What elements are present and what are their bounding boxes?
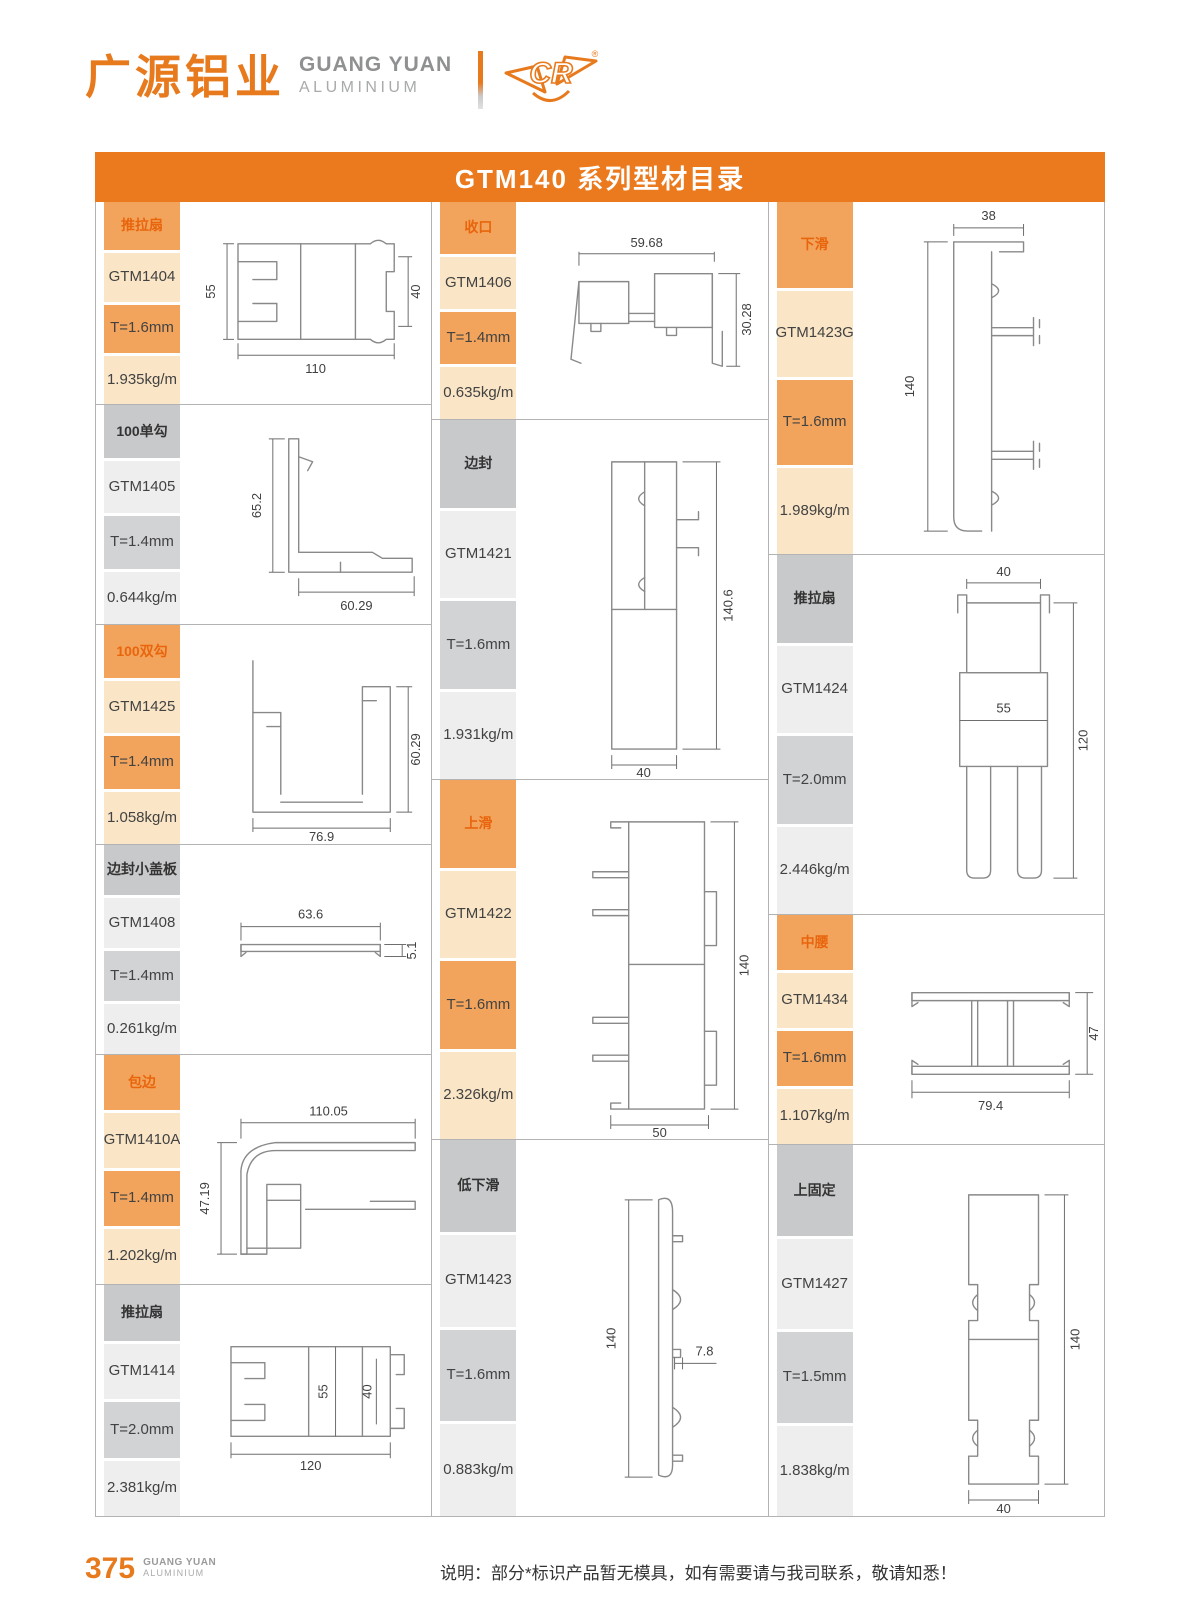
- page-title: GTM140 系列型材目录: [95, 152, 1105, 202]
- entry-labels: 下滑 GTM1423G T=1.6mm 1.989kg/m: [777, 202, 853, 554]
- product-code: GTM1434: [777, 973, 853, 1028]
- dim-label: 60.29: [408, 733, 423, 765]
- column-1: 推拉扇 GTM1404 T=1.6mm 1.935kg/m: [95, 202, 432, 1517]
- category-label: 推拉扇: [104, 202, 180, 250]
- entry-labels: 推拉扇 GTM1414 T=2.0mm 2.381kg/m: [104, 1285, 180, 1516]
- entry-labels: 包边 GTM1410A T=1.4mm 1.202kg/m: [104, 1055, 180, 1284]
- dim-label: 55: [996, 701, 1010, 716]
- entry-gtm1424: 推拉扇 GTM1424 T=2.0mm 2.446kg/m: [769, 555, 1104, 915]
- thickness-label: T=1.6mm: [440, 601, 516, 689]
- dim-label: 5.1: [404, 942, 419, 960]
- dim-label: 55: [316, 1384, 331, 1398]
- weight-label: 1.989kg/m: [777, 468, 853, 554]
- profile-svg: 55 110 40: [180, 202, 431, 404]
- profile-drawing: 38 140: [853, 202, 1104, 554]
- catalog-columns: 推拉扇 GTM1404 T=1.6mm 1.935kg/m: [95, 202, 1105, 1517]
- profile-svg: 110.05 47.19: [180, 1055, 431, 1284]
- thickness-label: T=1.6mm: [777, 1031, 853, 1086]
- brand-header: 广源铝业 GUANG YUAN ALUMINIUM CR ®: [85, 45, 1200, 120]
- dim-label: 140: [737, 955, 752, 977]
- entry-gtm1404: 推拉扇 GTM1404 T=1.6mm 1.935kg/m: [96, 202, 431, 405]
- category-label: 边封小盖板: [104, 845, 180, 895]
- entry-gtm1425: 100双勾 GTM1425 T=1.4mm 1.058kg/m: [96, 625, 431, 845]
- thickness-label: T=1.6mm: [777, 380, 853, 466]
- dim-label: 60.29: [340, 598, 372, 613]
- thickness-label: T=1.4mm: [104, 951, 180, 1001]
- profile-svg: 65.2 60.29: [180, 405, 431, 624]
- weight-label: 0.261kg/m: [104, 1004, 180, 1054]
- profile-drawing: 63.6 5.1: [180, 845, 431, 1054]
- dim-label: 110: [305, 361, 326, 376]
- category-label: 下滑: [777, 202, 853, 288]
- profile-drawing: 140 40: [853, 1145, 1104, 1516]
- product-code: GTM1427: [777, 1239, 853, 1330]
- product-code: GTM1404: [104, 253, 180, 301]
- catalog-page: 广源铝业 GUANG YUAN ALUMINIUM CR ® GTM140 系列…: [0, 0, 1200, 1617]
- category-label: 100双勾: [104, 625, 180, 678]
- entry-labels: 边封 GTM1421 T=1.6mm 1.931kg/m: [440, 420, 516, 779]
- entry-gtm1414: 推拉扇 GTM1414 T=2.0mm 2.381kg/m: [96, 1285, 431, 1517]
- profile-svg: 40 55 120: [853, 555, 1104, 914]
- entry-gtm1427: 上固定 GTM1427 T=1.5mm 1.838kg/m: [769, 1145, 1104, 1517]
- weight-label: 1.202kg/m: [104, 1229, 180, 1284]
- dim-label: 76.9: [309, 829, 334, 844]
- thickness-label: T=1.6mm: [440, 961, 516, 1049]
- logo-english-line1: GUANG YUAN: [299, 53, 452, 77]
- product-code: GTM1408: [104, 898, 180, 948]
- profile-drawing: 65.2 60.29: [180, 405, 431, 624]
- entry-labels: 低下滑 GTM1423 T=1.6mm 0.883kg/m: [440, 1140, 516, 1516]
- thickness-label: T=1.4mm: [104, 516, 180, 569]
- dim-label: 7.8: [696, 1343, 714, 1358]
- entry-labels: 100双勾 GTM1425 T=1.4mm 1.058kg/m: [104, 625, 180, 844]
- cr-logo-icon: CR ®: [501, 47, 601, 113]
- dim-label: 140: [902, 376, 917, 398]
- dim-label: 140: [1067, 1329, 1082, 1351]
- weight-label: 0.635kg/m: [440, 367, 516, 419]
- dim-label: 30.28: [739, 303, 754, 335]
- weight-label: 1.931kg/m: [440, 692, 516, 780]
- entry-gtm1410a: 包边 GTM1410A T=1.4mm 1.202kg/m: [96, 1055, 431, 1285]
- profile-drawing: 40 55 120: [853, 555, 1104, 914]
- dim-label: 79.4: [978, 1098, 1003, 1113]
- weight-label: 0.644kg/m: [104, 572, 180, 625]
- entry-gtm1406: 收口 GTM1406 T=1.4mm 0.635kg/m: [432, 202, 767, 420]
- dim-label: 40: [637, 765, 651, 779]
- dim-label: 65.2: [249, 493, 264, 518]
- dim-label: 120: [300, 1458, 322, 1473]
- profile-drawing: 79.4 47: [853, 915, 1104, 1144]
- product-code: GTM1423: [440, 1235, 516, 1327]
- weight-label: 1.107kg/m: [777, 1089, 853, 1144]
- footer-brand-line1: GUANG YUAN: [143, 1557, 216, 1568]
- category-label: 收口: [440, 202, 516, 254]
- page-number: 375: [85, 1553, 135, 1585]
- product-code: GTM1421: [440, 511, 516, 599]
- dim-label: 140: [604, 1328, 619, 1350]
- profile-svg: 63.6 5.1: [180, 845, 431, 1054]
- thickness-label: T=1.4mm: [104, 1171, 180, 1226]
- footer-brand-line2: ALUMINIUM: [143, 1568, 216, 1578]
- profile-svg: 140 50: [516, 780, 767, 1139]
- profile-svg: 55 40 120: [180, 1285, 431, 1516]
- profile-svg: 140 7.8: [516, 1140, 767, 1516]
- dim-label: 59.68: [631, 235, 663, 250]
- entry-labels: 推拉扇 GTM1424 T=2.0mm 2.446kg/m: [777, 555, 853, 914]
- entry-gtm1434: 中腰 GTM1434 T=1.6mm 1.107kg/m: [769, 915, 1104, 1145]
- entry-gtm1423g: 下滑 GTM1423G T=1.6mm 1.989kg/m: [769, 202, 1104, 555]
- entry-labels: 边封小盖板 GTM1408 T=1.4mm 0.261kg/m: [104, 845, 180, 1054]
- profile-svg: 140 40: [853, 1145, 1104, 1516]
- logo-english: GUANG YUAN ALUMINIUM: [299, 53, 452, 97]
- profile-svg: 59.68 30.28: [516, 202, 767, 419]
- column-2: 收口 GTM1406 T=1.4mm 0.635kg/m: [432, 202, 768, 1517]
- product-code: GTM1423G: [777, 291, 853, 377]
- entry-labels: 中腰 GTM1434 T=1.6mm 1.107kg/m: [777, 915, 853, 1144]
- dim-label: 47.19: [197, 1182, 212, 1214]
- category-label: 推拉扇: [104, 1285, 180, 1341]
- product-code: GTM1422: [440, 871, 516, 959]
- dim-label: 40: [408, 284, 423, 298]
- thickness-label: T=1.4mm: [104, 736, 180, 789]
- page-number-block: 375 GUANG YUAN ALUMINIUM: [85, 1553, 216, 1585]
- entry-labels: 上滑 GTM1422 T=1.6mm 2.326kg/m: [440, 780, 516, 1139]
- entry-gtm1405: 100单勾 GTM1405 T=1.4mm 0.644kg/m: [96, 405, 431, 625]
- catalog-table: GTM140 系列型材目录 推拉扇 GTM1404 T=1.6mm 1.935k…: [95, 152, 1105, 1517]
- category-label: 上滑: [440, 780, 516, 868]
- weight-label: 2.326kg/m: [440, 1052, 516, 1140]
- thickness-label: T=2.0mm: [104, 1402, 180, 1458]
- profile-drawing: 55 40 120: [180, 1285, 431, 1516]
- thickness-label: T=2.0mm: [777, 736, 853, 824]
- logo-chinese: 广源铝业: [85, 45, 285, 109]
- product-code: GTM1406: [440, 257, 516, 309]
- entry-gtm1421: 边封 GTM1421 T=1.6mm 1.931kg/m: [432, 420, 767, 780]
- entry-gtm1422: 上滑 GTM1422 T=1.6mm 2.326kg/m: [432, 780, 767, 1140]
- category-label: 100单勾: [104, 405, 180, 458]
- entry-labels: 推拉扇 GTM1404 T=1.6mm 1.935kg/m: [104, 202, 180, 404]
- product-code: GTM1405: [104, 461, 180, 514]
- profile-drawing: 140 50: [516, 780, 767, 1139]
- profile-svg: 38 140: [853, 202, 1104, 554]
- dim-label: 140.6: [721, 589, 736, 621]
- category-label: 包边: [104, 1055, 180, 1110]
- thickness-label: T=1.4mm: [440, 312, 516, 364]
- weight-label: 2.446kg/m: [777, 827, 853, 915]
- entry-gtm1423: 低下滑 GTM1423 T=1.6mm 0.883kg/m: [432, 1140, 767, 1517]
- footer-note: 说明：部分*标识产品暂无模具，如有需要请与我司联系，敬请知悉！: [440, 1559, 957, 1584]
- thickness-label: T=1.5mm: [777, 1332, 853, 1423]
- entry-labels: 上固定 GTM1427 T=1.5mm 1.838kg/m: [777, 1145, 853, 1516]
- dim-label: 50: [653, 1125, 667, 1139]
- profile-svg: 79.4 47: [853, 915, 1104, 1144]
- entry-gtm1408: 边封小盖板 GTM1408 T=1.4mm 0.261kg/m: [96, 845, 431, 1055]
- category-label: 边封: [440, 420, 516, 508]
- registered-mark: ®: [592, 49, 599, 59]
- dim-label: 110.05: [309, 1104, 348, 1119]
- dim-label: 40: [996, 1501, 1010, 1516]
- dim-label: 40: [359, 1384, 374, 1398]
- page-footer: 375 GUANG YUAN ALUMINIUM 说明：部分*标识产品暂无模具，…: [0, 1553, 1200, 1599]
- dim-label: 63.6: [298, 907, 323, 922]
- dim-label: 55: [203, 284, 218, 298]
- category-label: 推拉扇: [777, 555, 853, 643]
- weight-label: 0.883kg/m: [440, 1424, 516, 1516]
- profile-svg: 140.6 40: [516, 420, 767, 779]
- profile-drawing: 76.9 60.29: [180, 625, 431, 844]
- product-code: GTM1424: [777, 646, 853, 734]
- entry-labels: 收口 GTM1406 T=1.4mm 0.635kg/m: [440, 202, 516, 419]
- cr-logo-text: CR: [529, 57, 573, 90]
- brand-divider: [478, 51, 483, 109]
- profile-drawing: 140.6 40: [516, 420, 767, 779]
- product-code: GTM1425: [104, 681, 180, 734]
- thickness-label: T=1.6mm: [440, 1330, 516, 1422]
- category-label: 上固定: [777, 1145, 853, 1236]
- profile-svg: 76.9 60.29: [180, 625, 431, 844]
- weight-label: 2.381kg/m: [104, 1461, 180, 1517]
- dim-label: 38: [981, 208, 995, 223]
- weight-label: 1.935kg/m: [104, 356, 180, 404]
- profile-drawing: 59.68 30.28: [516, 202, 767, 419]
- dim-label: 120: [1075, 730, 1090, 752]
- product-code: GTM1410A: [104, 1113, 180, 1168]
- weight-label: 1.058kg/m: [104, 792, 180, 845]
- weight-label: 1.838kg/m: [777, 1426, 853, 1517]
- footer-brand: GUANG YUAN ALUMINIUM: [143, 1557, 216, 1578]
- category-label: 低下滑: [440, 1140, 516, 1232]
- profile-drawing: 110.05 47.19: [180, 1055, 431, 1284]
- profile-drawing: 55 110 40: [180, 202, 431, 404]
- entry-labels: 100单勾 GTM1405 T=1.4mm 0.644kg/m: [104, 405, 180, 624]
- category-label: 中腰: [777, 915, 853, 970]
- logo-english-line2: ALUMINIUM: [299, 79, 452, 97]
- product-code: GTM1414: [104, 1344, 180, 1400]
- thickness-label: T=1.6mm: [104, 305, 180, 353]
- profile-drawing: 140 7.8: [516, 1140, 767, 1516]
- dim-label: 47: [1086, 1026, 1101, 1040]
- column-3: 下滑 GTM1423G T=1.6mm 1.989kg/m: [769, 202, 1105, 1517]
- dim-label: 40: [996, 564, 1010, 579]
